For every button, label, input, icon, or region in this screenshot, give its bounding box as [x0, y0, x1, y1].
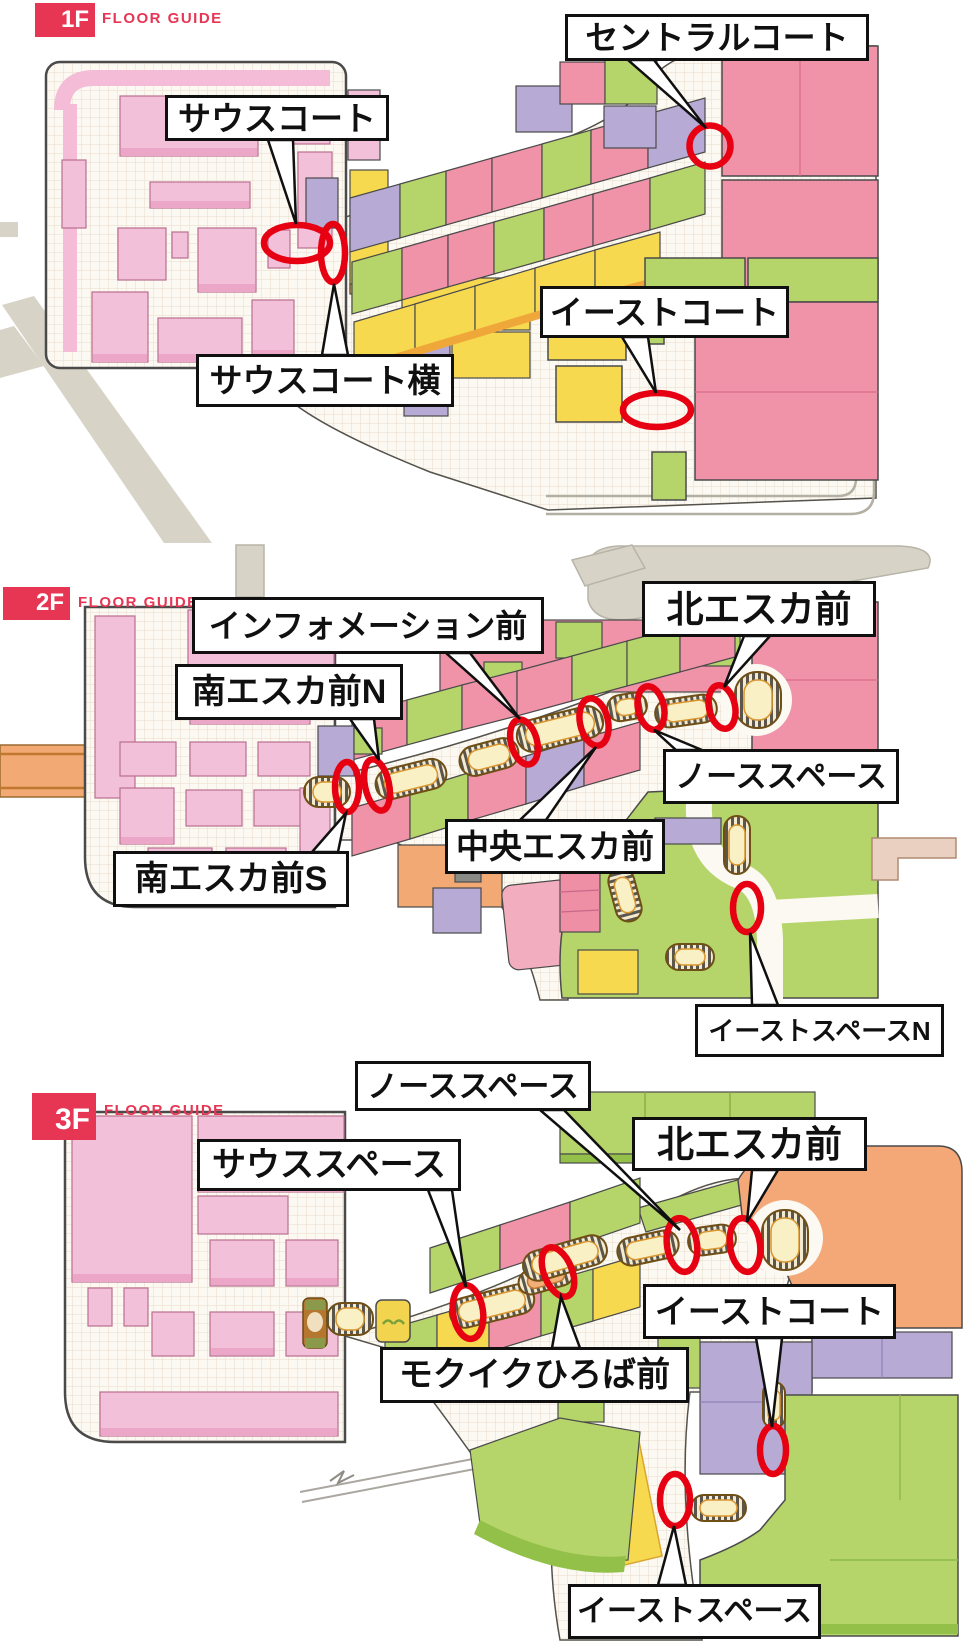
- floor-badge-3f: 3F: [32, 1093, 96, 1140]
- location-label-mokuiku-hiroba-front-3f: モクイクひろば前: [380, 1347, 689, 1403]
- location-label-south-court-side-1f: サウスコート横: [196, 354, 454, 407]
- location-label-north-space-3f: ノーススペース: [355, 1061, 591, 1111]
- floor-badge-2f: 2F: [3, 587, 70, 620]
- location-label-information-front-2f: インフォメーション前: [192, 597, 544, 654]
- location-label-south-escalator-front-s-2f: 南エスカ前S: [113, 851, 349, 907]
- location-label-south-escalator-front-n-2f: 南エスカ前N: [175, 664, 403, 720]
- location-label-south-court-1f: サウスコート: [165, 95, 389, 141]
- location-label-south-space-3f: サウススペース: [197, 1139, 461, 1191]
- location-label-east-space-3f: イーストスペース: [568, 1584, 821, 1639]
- location-label-north-space-2f: ノーススペース: [663, 749, 899, 804]
- location-label-central-escalator-front-2f: 中央エスカ前: [445, 819, 665, 874]
- floor-guide-label-1f: FLOOR GUIDE: [102, 10, 223, 27]
- floor-guide-page: 1F FLOOR GUIDE 2F FLOOR GUIDE 3F FLOOR G…: [0, 0, 980, 1650]
- location-label-north-escalator-front-2f: 北エスカ前: [642, 581, 876, 637]
- location-label-north-escalator-front-3f: 北エスカ前: [632, 1117, 867, 1171]
- location-label-central-court-1f: セントラルコート: [565, 14, 869, 61]
- location-label-east-court-3f: イーストコート: [643, 1284, 896, 1339]
- kids-area-icon: [376, 1300, 410, 1342]
- location-label-east-space-n-2f: イーストスペースN: [695, 1004, 944, 1057]
- bridge-west-2f: [0, 745, 86, 797]
- location-label-east-court-1f: イーストコート: [540, 286, 789, 338]
- bridge-east-2f: [872, 838, 956, 880]
- floor-badge-1f: 1F: [35, 3, 95, 37]
- floor-guide-label-2f: FLOOR GUIDE: [78, 594, 199, 611]
- floor-guide-label-3f: FLOOR GUIDE: [104, 1102, 225, 1119]
